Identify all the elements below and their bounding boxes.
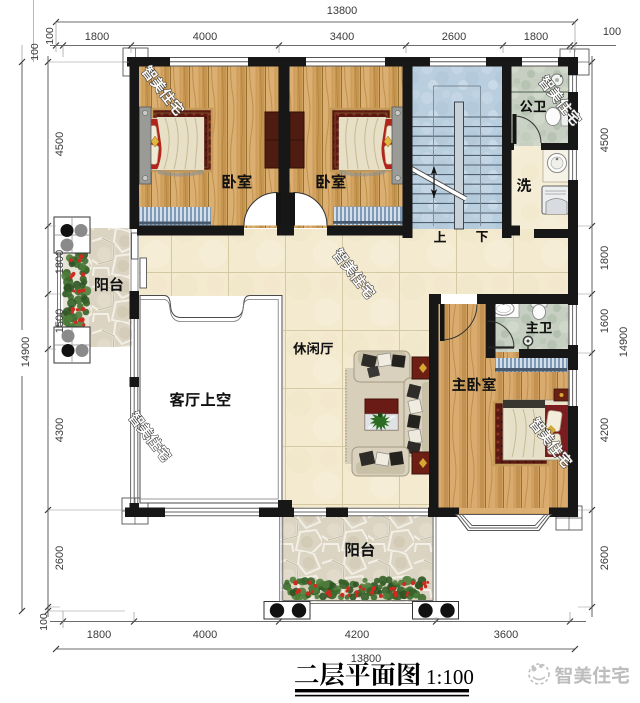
svg-text:100: 100: [603, 26, 621, 38]
svg-text:1600: 1600: [599, 309, 611, 333]
svg-text:1:100: 1:100: [426, 665, 474, 689]
svg-text:4200: 4200: [599, 418, 611, 442]
svg-text:4200: 4200: [345, 629, 369, 641]
svg-text:4300: 4300: [54, 418, 66, 442]
svg-text:3600: 3600: [494, 629, 518, 641]
svg-text:13800: 13800: [327, 5, 358, 17]
svg-text:1500: 1500: [54, 309, 66, 333]
svg-text:2600: 2600: [599, 546, 611, 570]
svg-text:2600: 2600: [442, 31, 466, 43]
svg-text:1800: 1800: [54, 250, 66, 274]
svg-text:14900: 14900: [618, 327, 630, 358]
svg-text:2600: 2600: [54, 546, 66, 570]
svg-text:14900: 14900: [20, 337, 32, 368]
svg-text:1800: 1800: [85, 31, 109, 43]
svg-text:100: 100: [44, 27, 56, 45]
svg-text:4500: 4500: [54, 132, 66, 156]
svg-text:4000: 4000: [193, 629, 217, 641]
svg-text:1800: 1800: [599, 246, 611, 270]
svg-text:3400: 3400: [330, 31, 354, 43]
svg-text:4000: 4000: [193, 31, 217, 43]
svg-text:100: 100: [38, 613, 50, 631]
svg-text:1800: 1800: [524, 31, 548, 43]
svg-text:1800: 1800: [87, 629, 111, 641]
svg-text:4500: 4500: [599, 128, 611, 152]
svg-text:100: 100: [29, 43, 41, 61]
